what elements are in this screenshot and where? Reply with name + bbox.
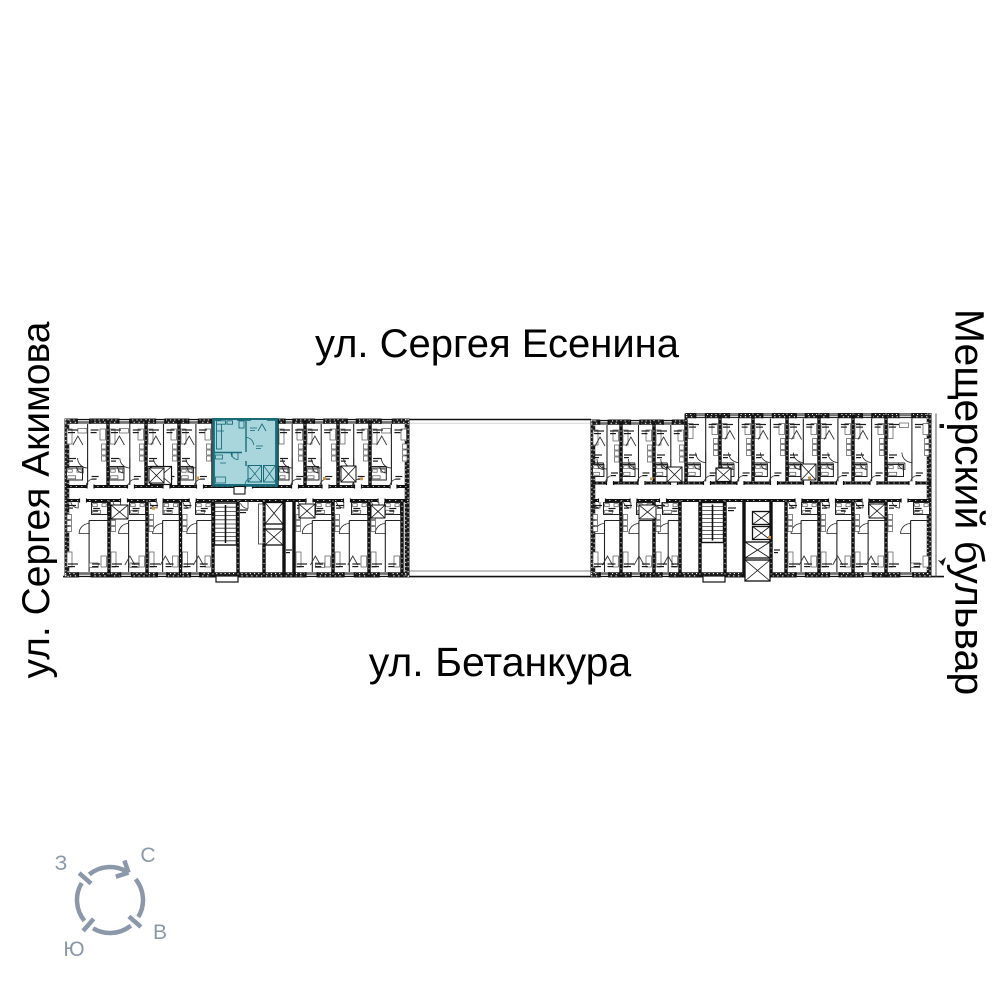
svg-text:ул. Бетанкура: ул. Бетанкура xyxy=(369,639,632,685)
svg-text:С: С xyxy=(140,844,155,867)
svg-text:Мещерский бульвар: Мещерский бульвар xyxy=(947,309,993,695)
svg-text:В: В xyxy=(153,921,167,944)
svg-text:ул. Сергея Акимова: ул. Сергея Акимова xyxy=(15,321,58,678)
svg-text:Ю: Ю xyxy=(63,938,84,961)
svg-text:З: З xyxy=(55,852,68,875)
svg-text:ул. Сергея Есенина: ул. Сергея Есенина xyxy=(315,322,680,366)
